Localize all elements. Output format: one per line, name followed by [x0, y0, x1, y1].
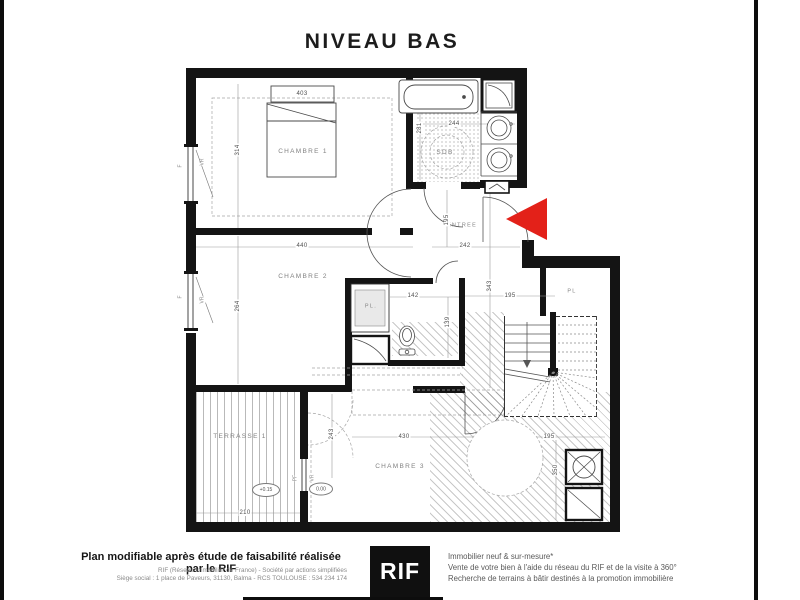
dim-sdb-width: 244	[448, 121, 461, 127]
rif-logo-text: RIF	[380, 558, 420, 585]
dim-stair-width: 195	[504, 293, 517, 299]
room-label-chambre2: CHAMBRE 2	[278, 274, 328, 281]
level-chambre3-value: 0.00	[316, 486, 326, 492]
dim-sdb-depth: 281	[417, 122, 423, 135]
dim-c2-depth: 264	[235, 300, 241, 313]
window3-type-label: PF	[294, 475, 299, 481]
dim-c3-width: 430	[398, 434, 411, 440]
level-terrasse-value: +0.15	[260, 487, 273, 493]
shower-icon	[482, 79, 516, 112]
dim-laundry-width: 195	[543, 434, 556, 440]
dim-terrasse-width: 210	[239, 510, 252, 516]
dim-wc-depth: 139	[445, 316, 451, 329]
window-terrace-door	[300, 456, 308, 494]
double-sink-icon	[481, 112, 517, 176]
window1-type-label: F	[179, 164, 184, 167]
staircase-icon	[504, 312, 597, 417]
level-badge-chambre3: 0.00	[309, 483, 333, 496]
page: { "title": "NIVEAU BAS", "colors": { "wa…	[0, 0, 800, 600]
bathtub-icon	[399, 80, 478, 113]
dim-entree-depth: 195	[444, 214, 450, 227]
footer-company-line: RIF (Réseau Immobilier de France) - Soci…	[75, 567, 347, 575]
dim-c1-depth: 314	[235, 144, 241, 157]
dim-entree-width: 242	[459, 243, 472, 249]
footer-services-line2: Vente de votre bien à l'aide du réseau d…	[448, 562, 748, 573]
dimension-lines	[196, 84, 605, 520]
footer-services: Immobilier neuf & sur-mesure* Vente de v…	[448, 551, 748, 584]
rif-logo: RIF	[370, 546, 430, 597]
plan-linework	[0, 0, 800, 600]
window1-shutter-label: VR	[201, 159, 206, 166]
bed-icon	[267, 86, 336, 177]
dim-bed-width: 403	[296, 91, 309, 97]
turning-circle	[467, 420, 543, 496]
dim-wc-width: 142	[407, 293, 420, 299]
toilet-icon	[399, 326, 415, 355]
room-label-terrasse: TERRASSE 1	[213, 434, 266, 441]
room-label-entree: ENTREE	[447, 223, 477, 229]
footer-services-line3: Recherche de terrains à bâtir destinés à…	[448, 573, 748, 584]
window-2	[184, 271, 213, 331]
room-label-pl-hall: PL	[567, 289, 576, 295]
meter-niche-icon	[485, 181, 509, 193]
dim-c3-door-depth: 243	[329, 428, 335, 441]
footer-address-line: Siège social : 1 place de Paveurs, 31130…	[75, 575, 347, 583]
footer-services-line1: Immobilier neuf & sur-mesure*	[448, 551, 748, 562]
dim-laundry-depth: 350	[553, 464, 559, 477]
washing-machine-icon	[566, 450, 602, 484]
room-label-pl-wc: PL.	[365, 304, 377, 310]
room-label-chambre3: CHAMBRE 3	[375, 464, 425, 471]
entrance-arrow-icon	[506, 198, 547, 240]
window3-shutter-label: VR	[311, 475, 316, 482]
room-label-sdb: SDB	[436, 150, 453, 157]
closet-pl-icon	[351, 284, 389, 364]
window-1	[184, 144, 213, 204]
footer-company-info: RIF (Réseau Immobilier de France) - Soci…	[75, 567, 347, 583]
dim-hall-depth: 343	[487, 280, 493, 293]
window2-type-label: F	[179, 295, 184, 298]
technical-cabinet-icon	[566, 488, 602, 520]
window2-shutter-label: VR	[201, 297, 206, 304]
level-badge-terrasse: +0.15	[252, 483, 280, 497]
dim-c1-width: 440	[296, 243, 309, 249]
room-label-chambre1: CHAMBRE 1	[278, 149, 328, 156]
